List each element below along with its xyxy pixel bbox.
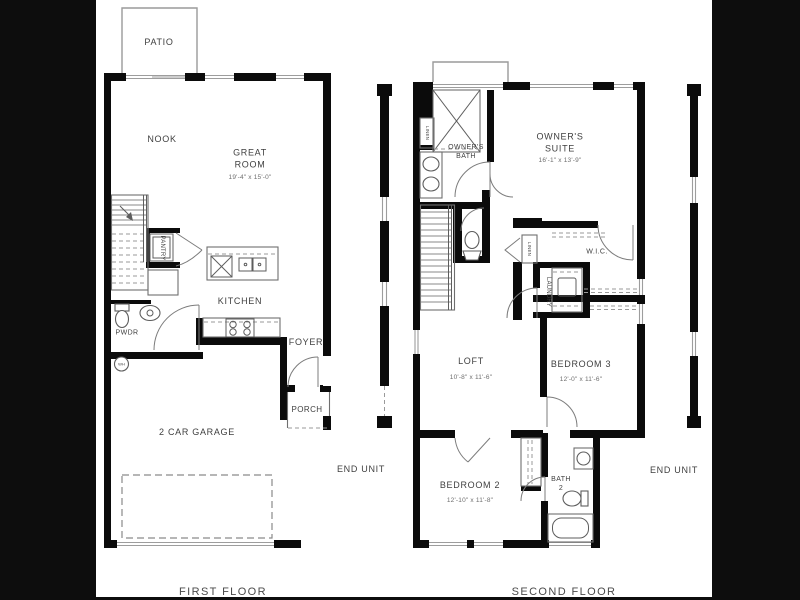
suite-door-arc xyxy=(490,174,513,197)
powder-door-arc xyxy=(154,305,199,350)
bedroom2-door xyxy=(455,438,490,462)
windows-first-floor xyxy=(126,73,304,81)
linen-closet-hall xyxy=(505,235,537,263)
room-label-linen-bath: LINEN xyxy=(424,126,430,140)
room-label-powder: PWDR xyxy=(116,328,139,337)
plan-linework xyxy=(0,0,800,600)
party-wall-right xyxy=(687,84,701,428)
bath2-sink-icon xyxy=(574,448,593,469)
water-closet xyxy=(461,208,484,260)
kitchen-counter xyxy=(203,318,280,337)
room-dims-bedroom2: 12'-10" x 11'-8" xyxy=(447,497,493,505)
washer-icon xyxy=(552,268,582,312)
room-label-bath2: BATH 2 xyxy=(548,475,574,493)
floor-plan-image: PATIO NOOK GREAT ROOM 19'-4" x 15'-0" PA… xyxy=(0,0,800,600)
toilet-icon xyxy=(115,304,129,328)
front-door xyxy=(288,356,331,387)
room-dims-owners-suite: 16'-1" x 13'-9" xyxy=(539,157,582,165)
exterior-walls-first-floor xyxy=(104,73,331,548)
end-unit-label-first: END UNIT xyxy=(337,464,385,476)
room-label-loft: LOFT xyxy=(458,356,484,368)
patio-roof-outline xyxy=(433,62,508,82)
caption-first-floor: FIRST FLOOR xyxy=(179,585,267,599)
room-label-bedroom3: BEDROOM 3 xyxy=(551,359,611,371)
bedroom2-closet xyxy=(521,438,541,486)
toilet-icon-second-floor xyxy=(463,232,481,261)
stairs-first-floor xyxy=(112,195,149,290)
stairs-second-floor xyxy=(421,205,455,310)
room-label-foyer: FOYER xyxy=(289,337,324,349)
kitchen-island xyxy=(207,247,278,280)
powder-room xyxy=(115,304,199,350)
pantry-door xyxy=(176,233,202,250)
room-dims-bedroom3: 12'-0" x 11'-6" xyxy=(560,376,603,384)
room-label-linen-hall: LINEN xyxy=(526,242,532,256)
interior-walls-first-floor xyxy=(104,228,331,420)
room-label-great-room: GREAT ROOM xyxy=(227,147,273,170)
vanity-double-sink-icon xyxy=(420,152,442,198)
room-label-patio: PATIO xyxy=(144,37,173,49)
bedroom3-door xyxy=(547,397,577,427)
water-heater-label: WH xyxy=(118,361,125,366)
garage-parking-dashed xyxy=(122,475,272,538)
room-label-nook: NOOK xyxy=(147,134,176,146)
bathtub-icon xyxy=(548,514,593,542)
party-wall-left xyxy=(377,84,392,428)
pedestal-sink-icon xyxy=(140,306,160,321)
garage-door xyxy=(117,540,274,548)
room-label-owners-bath: OWNER'S BATH xyxy=(443,143,489,161)
room-label-garage: 2 CAR GARAGE xyxy=(159,427,235,439)
linen-door xyxy=(505,238,520,262)
front-door-arc xyxy=(288,357,318,387)
room-dims-great-room: 19'-4" x 15'-0" xyxy=(229,174,272,182)
room-dims-loft: 10'-8" x 11'-6" xyxy=(450,374,493,382)
room-label-pantry: PANTRY xyxy=(157,236,165,261)
room-label-kitchen: KITCHEN xyxy=(218,296,262,308)
caption-second-floor: SECOND FLOOR xyxy=(512,585,617,599)
room-label-owners-suite: OWNER'S SUITE xyxy=(531,131,589,154)
room-label-bedroom2: BEDROOM 2 xyxy=(440,480,500,492)
room-label-porch: PORCH xyxy=(292,405,323,415)
room-label-wic: W.I.C. xyxy=(586,247,607,256)
storage-closet xyxy=(148,270,178,295)
toilet-room-door-arc xyxy=(461,208,484,231)
island-sink-icon xyxy=(211,256,232,277)
bath2-toilet-icon xyxy=(563,491,588,506)
end-unit-label-second: END UNIT xyxy=(650,465,698,477)
room-label-laundry: LAUNDRY xyxy=(543,277,551,307)
